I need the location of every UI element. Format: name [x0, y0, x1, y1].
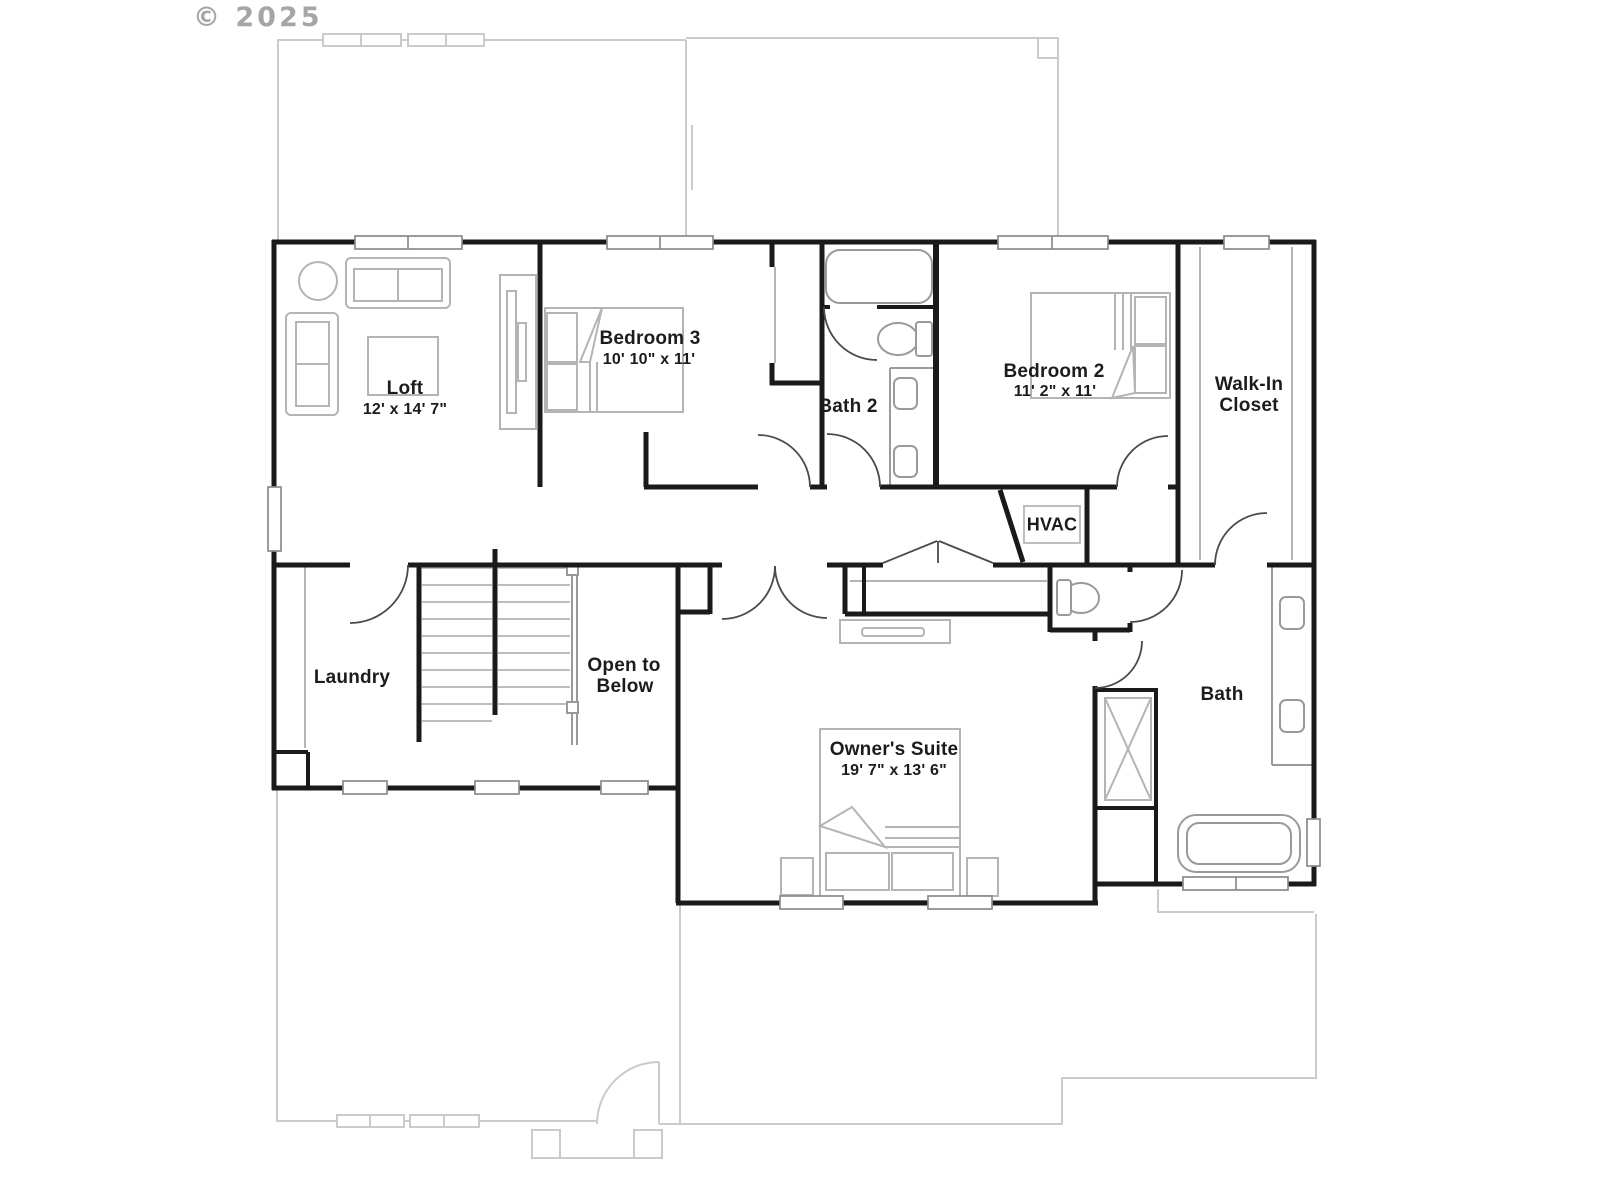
bath2-door: [827, 434, 880, 487]
toilet-tank: [916, 322, 932, 356]
room-label-loft: Loft: [387, 378, 424, 400]
tv-console: [840, 620, 950, 643]
tv: [862, 628, 924, 636]
bath2-wc-door: [824, 307, 877, 360]
bedroom3-door: [758, 435, 810, 487]
room-dims-bedroom2: 11' 2" x 11': [1014, 383, 1097, 401]
room-label-bedroom3: Bedroom 3: [599, 328, 700, 350]
pillow: [547, 313, 577, 362]
room-label-laundry: Laundry: [314, 667, 390, 689]
copyright-watermark: © 2025: [193, 2, 323, 33]
room-label-walk-in-closet-line2: Closet: [1219, 395, 1278, 417]
pillow: [892, 853, 953, 890]
hall-closet-double-doors: [883, 541, 993, 563]
pillow: [826, 853, 889, 890]
room-label-open-to-below-line1: Open to: [587, 655, 660, 677]
room-dims-bedroom3: 10' 10" x 11': [603, 351, 696, 369]
room-dims-loft: 12' x 14' 7": [363, 401, 447, 419]
pillow: [1135, 297, 1166, 344]
ghost-outline-lower-floor: [277, 34, 1316, 1158]
room-label-open-to-below-line2: Below: [597, 676, 654, 698]
walk-in-closet-door: [1215, 513, 1267, 565]
floor-plan-page: © 2025 Loft 12' x 14' 7" Bedroom 3 10' 1…: [0, 0, 1600, 1200]
round-side-table: [299, 262, 337, 300]
nightstand: [781, 858, 813, 895]
sink: [1280, 700, 1304, 732]
floor-plan-drawing: [0, 0, 1600, 1200]
room-dims-owners-suite: 19' 7" x 13' 6": [841, 762, 947, 780]
pillow: [1135, 346, 1166, 393]
bedroom2-door: [1117, 436, 1168, 487]
pillow: [547, 364, 577, 410]
suite-bath-door: [1095, 641, 1142, 688]
sink: [894, 446, 917, 477]
closet-shelving: [305, 247, 1292, 748]
room-label-bath2: Bath 2: [818, 396, 877, 418]
bathtub: [826, 250, 932, 303]
room-label-walk-in-closet-line1: Walk-In: [1215, 374, 1283, 396]
room-label-bedroom2: Bedroom 2: [1003, 361, 1104, 383]
staircase: [422, 564, 578, 745]
blanket-fold: [1112, 346, 1135, 398]
walls: [272, 240, 1316, 903]
suite-double-door-right: [775, 566, 827, 618]
blanket-fold: [820, 807, 885, 847]
suite-double-door-left: [722, 566, 775, 619]
sink: [894, 378, 917, 409]
bath2-fixtures: [826, 250, 936, 485]
suite-wc-door: [1130, 570, 1182, 622]
room-label-hvac: HVAC: [1027, 515, 1077, 536]
room-label-owners-suite: Owner's Suite: [830, 739, 959, 761]
hvac-angled-door-wall: [1000, 490, 1023, 562]
toilet-tank: [1057, 580, 1071, 615]
sink: [1280, 597, 1304, 629]
nightstand: [967, 858, 998, 896]
laundry-door: [350, 565, 408, 623]
room-label-bath: Bath: [1200, 684, 1243, 706]
toilet: [878, 323, 918, 355]
stair-newel-post: [567, 702, 578, 713]
